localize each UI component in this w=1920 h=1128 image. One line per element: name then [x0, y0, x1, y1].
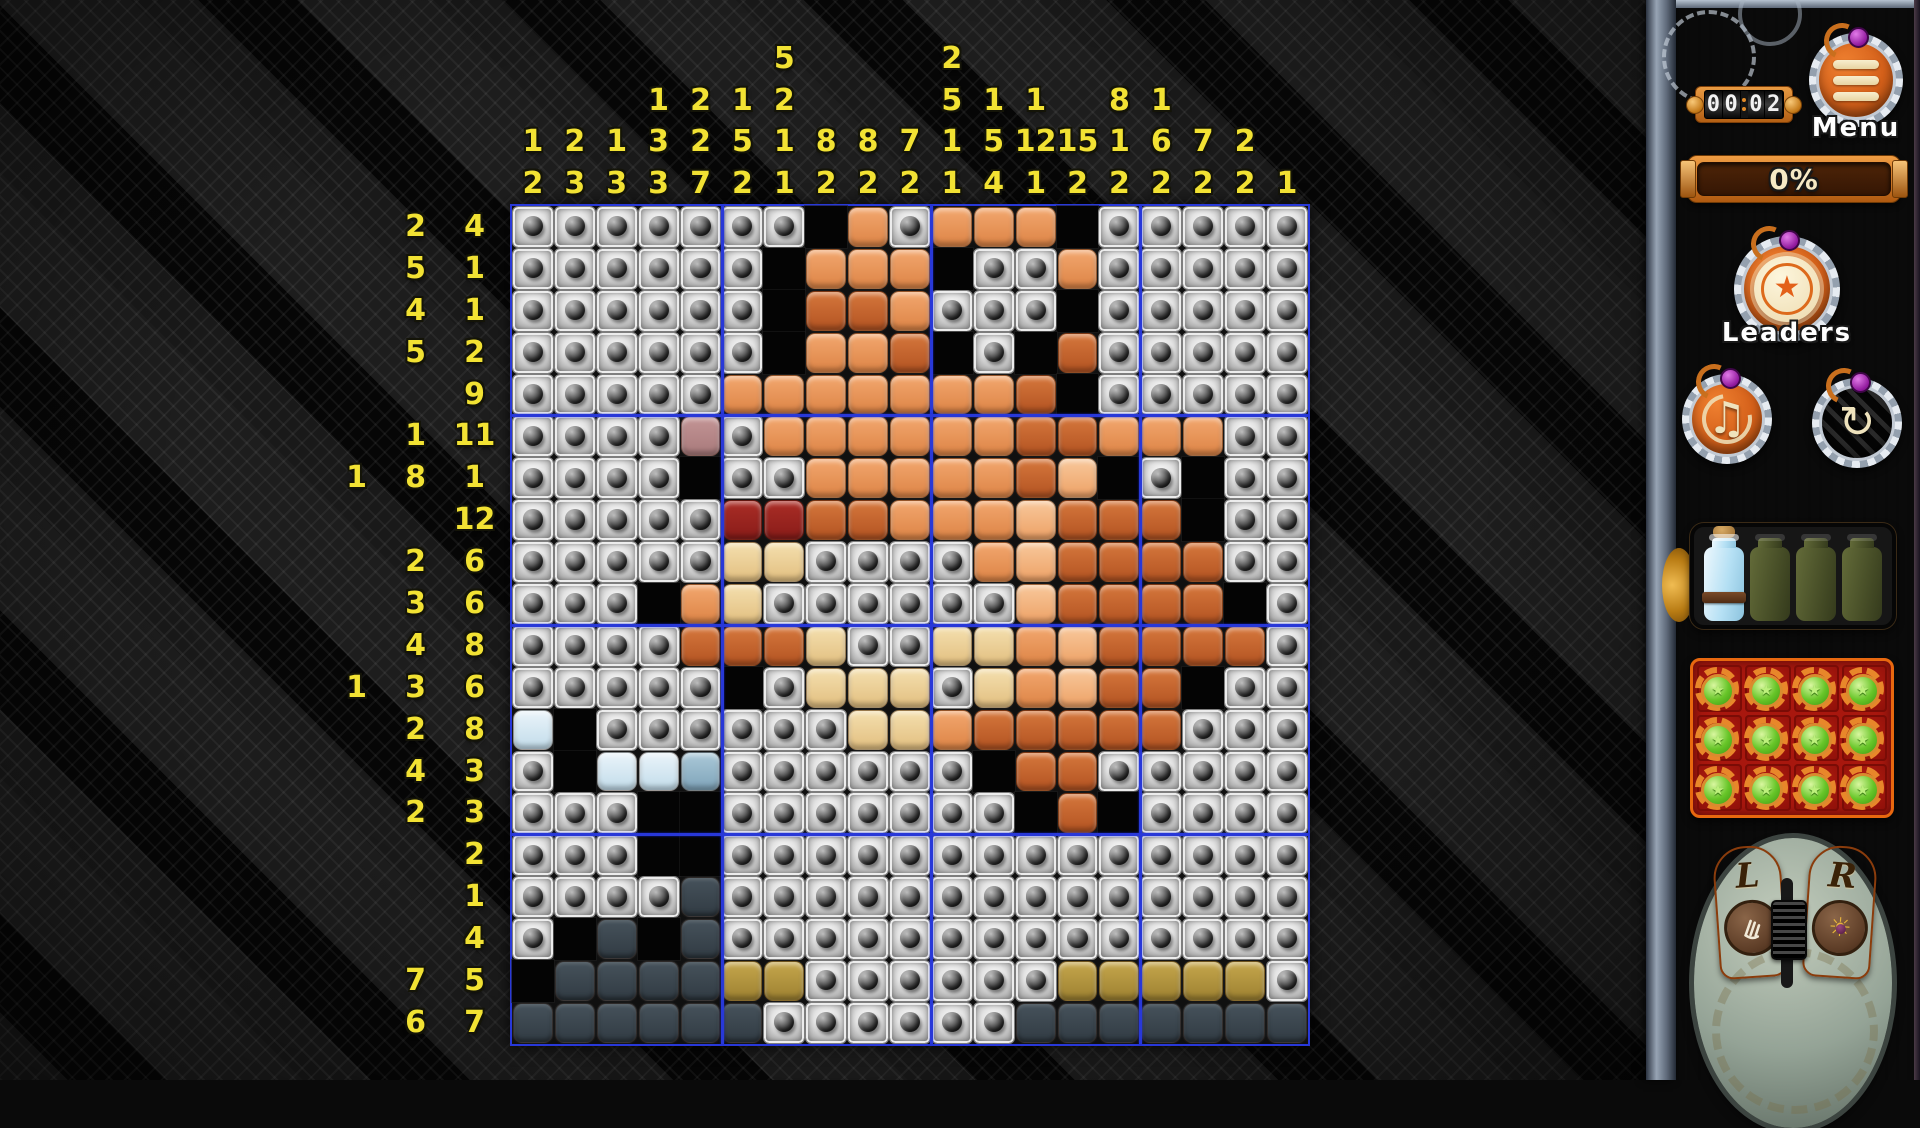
grid-cell[interactable]: [722, 333, 762, 373]
grid-cell[interactable]: [1058, 500, 1098, 540]
grid-cell[interactable]: [555, 542, 595, 582]
grid-cell[interactable]: [1267, 668, 1307, 708]
grid-cell[interactable]: [1183, 584, 1223, 624]
potion-slot[interactable]: [1794, 531, 1838, 621]
grid-cell[interactable]: [597, 291, 637, 331]
grid-cell[interactable]: [890, 375, 930, 415]
grid-cell[interactable]: [555, 626, 595, 666]
grid-cell[interactable]: [1099, 584, 1139, 624]
grid-cell[interactable]: [722, 919, 762, 959]
grid-cell[interactable]: [806, 249, 846, 289]
grid-cell[interactable]: [932, 752, 972, 792]
grid-cell[interactable]: [513, 752, 553, 792]
grid-cell[interactable]: [1016, 626, 1056, 666]
grid-cell[interactable]: [932, 416, 972, 456]
grid-cell[interactable]: [764, 500, 804, 540]
grid-cell[interactable]: [1225, 542, 1265, 582]
grid-cell[interactable]: [722, 291, 762, 331]
grid-cell[interactable]: [764, 793, 804, 833]
grid-cell[interactable]: [974, 668, 1014, 708]
grid-cell[interactable]: [1267, 375, 1307, 415]
grid-cell[interactable]: [597, 1003, 637, 1043]
grid-cell[interactable]: [932, 877, 972, 917]
grid-cell[interactable]: [932, 542, 972, 582]
grid-cell[interactable]: [848, 249, 888, 289]
grid-cell[interactable]: [1057, 290, 1099, 332]
grid-cell[interactable]: [806, 416, 846, 456]
grid-cell[interactable]: [764, 668, 804, 708]
grid-cell[interactable]: [681, 500, 721, 540]
grid-cell[interactable]: [848, 668, 888, 708]
grid-cell[interactable]: [1225, 752, 1265, 792]
grid-cell[interactable]: [1267, 500, 1307, 540]
grid-cell[interactable]: [764, 416, 804, 456]
grid-cell[interactable]: [1141, 584, 1181, 624]
grid-cell[interactable]: [1225, 919, 1265, 959]
grid-cell[interactable]: [1225, 375, 1265, 415]
grid-cell[interactable]: [1016, 752, 1056, 792]
grid-cell[interactable]: [722, 835, 762, 875]
grid-cell[interactable]: [597, 877, 637, 917]
grid-cell[interactable]: [597, 249, 637, 289]
grid-cell[interactable]: [513, 793, 553, 833]
grid-cell[interactable]: [555, 500, 595, 540]
grid-cell[interactable]: [1016, 207, 1056, 247]
grid-cell[interactable]: [597, 835, 637, 875]
grid-cell[interactable]: [555, 291, 595, 331]
grid-cell[interactable]: [890, 542, 930, 582]
grid-cell[interactable]: [639, 207, 679, 247]
grid-cell[interactable]: [1267, 249, 1307, 289]
grid-cell[interactable]: [1141, 416, 1181, 456]
grid-cell[interactable]: [597, 333, 637, 373]
grid-cell[interactable]: [555, 249, 595, 289]
grid-cell[interactable]: [764, 710, 804, 750]
grid-cell[interactable]: [763, 290, 805, 332]
grid-cell[interactable]: [597, 626, 637, 666]
grid-cell[interactable]: [1016, 919, 1056, 959]
grid-cell[interactable]: [848, 919, 888, 959]
grid-cell[interactable]: [932, 291, 972, 331]
grid-cell[interactable]: [639, 500, 679, 540]
grid-cell[interactable]: [681, 207, 721, 247]
grid-cell[interactable]: [1099, 291, 1139, 331]
grid-cell[interactable]: [513, 458, 553, 498]
grid-cell[interactable]: [1267, 1003, 1307, 1043]
grid-cell[interactable]: [932, 793, 972, 833]
grid-cell[interactable]: [932, 458, 972, 498]
grid-cell[interactable]: [1183, 542, 1223, 582]
grid-cell[interactable]: [890, 877, 930, 917]
grid-cell[interactable]: [890, 710, 930, 750]
grid-cell[interactable]: [1225, 1003, 1265, 1043]
grid-cell[interactable]: [639, 668, 679, 708]
grid-cell[interactable]: [931, 248, 973, 290]
grid-cell[interactable]: [1016, 668, 1056, 708]
grid-cell[interactable]: [554, 918, 596, 960]
grid-cell[interactable]: [1016, 542, 1056, 582]
grid-cell[interactable]: [1016, 877, 1056, 917]
grid-cell[interactable]: [764, 919, 804, 959]
grid-cell[interactable]: [848, 793, 888, 833]
grid-cell[interactable]: [1058, 752, 1098, 792]
grid-cell[interactable]: [1267, 458, 1307, 498]
grid-cell[interactable]: [974, 291, 1014, 331]
grid-cell[interactable]: [1141, 207, 1181, 247]
grid-cell[interactable]: [639, 877, 679, 917]
grid-cell[interactable]: [555, 416, 595, 456]
grid-cell[interactable]: [764, 877, 804, 917]
grid-cell[interactable]: [1099, 668, 1139, 708]
grid-cell[interactable]: [974, 835, 1014, 875]
grid-cell[interactable]: [932, 626, 972, 666]
grid-cell[interactable]: [681, 668, 721, 708]
grid-cell[interactable]: [681, 333, 721, 373]
grid-cell[interactable]: [1141, 291, 1181, 331]
grid-cell[interactable]: [890, 291, 930, 331]
grid-cell[interactable]: [1225, 668, 1265, 708]
grid-cell[interactable]: [1224, 583, 1266, 625]
grid-cell[interactable]: [513, 542, 553, 582]
grid-cell[interactable]: [1182, 499, 1224, 541]
grid-cell[interactable]: [639, 416, 679, 456]
grid-cell[interactable]: [890, 626, 930, 666]
grid-cell[interactable]: [932, 710, 972, 750]
grid-cell[interactable]: [1099, 752, 1139, 792]
grid-cell[interactable]: [932, 500, 972, 540]
grid-cell[interactable]: [1141, 542, 1181, 582]
grid-cell[interactable]: [890, 207, 930, 247]
grid-cell[interactable]: [1267, 584, 1307, 624]
grid-cell[interactable]: [1099, 416, 1139, 456]
grid-cell[interactable]: [1267, 626, 1307, 666]
grid-cell[interactable]: [763, 248, 805, 290]
grid-cell[interactable]: [1098, 457, 1140, 499]
grid-cell[interactable]: [722, 500, 762, 540]
grid-cell[interactable]: [597, 207, 637, 247]
grid-cell[interactable]: [932, 919, 972, 959]
grid-cell[interactable]: [681, 291, 721, 331]
grid-cell[interactable]: [1099, 919, 1139, 959]
grid-cell[interactable]: [1016, 710, 1056, 750]
grid-cell[interactable]: [974, 793, 1014, 833]
grid-cell[interactable]: [1183, 291, 1223, 331]
grid-cell[interactable]: [848, 500, 888, 540]
grid-cell[interactable]: [974, 333, 1014, 373]
grid-cell[interactable]: [1016, 249, 1056, 289]
grid-cell[interactable]: [1267, 416, 1307, 456]
grid-cell[interactable]: [722, 793, 762, 833]
grid-cell[interactable]: [1016, 416, 1056, 456]
grid-cell[interactable]: [848, 375, 888, 415]
grid-cell[interactable]: [555, 961, 595, 1001]
grid-cell[interactable]: [639, 710, 679, 750]
grid-cell[interactable]: [1267, 710, 1307, 750]
grid-cell[interactable]: [1058, 835, 1098, 875]
grid-cell[interactable]: [638, 834, 680, 876]
grid-cell[interactable]: [639, 542, 679, 582]
grid-cell[interactable]: [1225, 291, 1265, 331]
grid-cell[interactable]: [1183, 416, 1223, 456]
grid-cell[interactable]: [513, 626, 553, 666]
grid-cell[interactable]: [597, 584, 637, 624]
grid-cell[interactable]: [555, 1003, 595, 1043]
grid-cell[interactable]: [890, 793, 930, 833]
grid-cell[interactable]: [639, 375, 679, 415]
grid-cell[interactable]: [764, 626, 804, 666]
grid-cell[interactable]: [1183, 919, 1223, 959]
grid-cell[interactable]: [1057, 206, 1099, 248]
grid-cell[interactable]: [1099, 333, 1139, 373]
grid-cell[interactable]: [597, 793, 637, 833]
grid-cell[interactable]: [722, 877, 762, 917]
grid-cell[interactable]: [680, 457, 722, 499]
grid-cell[interactable]: [722, 249, 762, 289]
grid-cell[interactable]: [848, 835, 888, 875]
grid-cell[interactable]: [806, 584, 846, 624]
grid-cell[interactable]: [513, 416, 553, 456]
grid-cell[interactable]: [1183, 793, 1223, 833]
grid-cell[interactable]: [597, 375, 637, 415]
potion-slot[interactable]: [1748, 531, 1792, 621]
grid-cell[interactable]: [890, 416, 930, 456]
grid-cell[interactable]: [1267, 752, 1307, 792]
grid-cell[interactable]: [1058, 1003, 1098, 1043]
grid-cell[interactable]: [681, 877, 721, 917]
grid-cell[interactable]: [806, 835, 846, 875]
grid-cell[interactable]: [806, 752, 846, 792]
grid-cell[interactable]: [1058, 542, 1098, 582]
grid-cell[interactable]: [1141, 919, 1181, 959]
grid-cell[interactable]: [722, 1003, 762, 1043]
grid-cell[interactable]: [931, 332, 973, 374]
grid-cell[interactable]: [1141, 710, 1181, 750]
grid-cell[interactable]: [848, 961, 888, 1001]
grid-cell[interactable]: [806, 500, 846, 540]
grid-cell[interactable]: [932, 207, 972, 247]
grid-cell[interactable]: [1183, 375, 1223, 415]
grid-cell[interactable]: [1141, 835, 1181, 875]
grid-cell[interactable]: [764, 961, 804, 1001]
grid-cell[interactable]: [890, 668, 930, 708]
grid-cell[interactable]: [638, 583, 680, 625]
grid-cell[interactable]: [890, 835, 930, 875]
grid-cell[interactable]: [806, 793, 846, 833]
grid-cell[interactable]: [554, 751, 596, 793]
grid-cell[interactable]: [764, 835, 804, 875]
grid-cell[interactable]: [1183, 207, 1223, 247]
grid-cell[interactable]: [806, 668, 846, 708]
grid-cell[interactable]: [1058, 668, 1098, 708]
grid-cell[interactable]: [848, 877, 888, 917]
grid-cell[interactable]: [1099, 710, 1139, 750]
grid-cell[interactable]: [681, 752, 721, 792]
grid-cell[interactable]: [848, 458, 888, 498]
grid-cell[interactable]: [848, 584, 888, 624]
grid-cell[interactable]: [974, 458, 1014, 498]
grid-cell[interactable]: [1225, 626, 1265, 666]
grid-cell[interactable]: [1225, 500, 1265, 540]
grid-cell[interactable]: [1225, 458, 1265, 498]
grid-cell[interactable]: [1225, 207, 1265, 247]
grid-cell[interactable]: [806, 458, 846, 498]
grid-cell[interactable]: [513, 919, 553, 959]
grid-cell[interactable]: [1225, 416, 1265, 456]
grid-cell[interactable]: [974, 375, 1014, 415]
grid-cell[interactable]: [1141, 249, 1181, 289]
grid-cell[interactable]: [1057, 374, 1099, 416]
grid-cell[interactable]: [1267, 333, 1307, 373]
grid-cell[interactable]: [597, 710, 637, 750]
grid-cell[interactable]: [1225, 835, 1265, 875]
grid-cell[interactable]: [1016, 584, 1056, 624]
grid-cell[interactable]: [1099, 961, 1139, 1001]
grid-cell[interactable]: [974, 207, 1014, 247]
grid-cell[interactable]: [848, 710, 888, 750]
grid-cell[interactable]: [555, 668, 595, 708]
grid-cell[interactable]: [764, 542, 804, 582]
grid-cell[interactable]: [763, 332, 805, 374]
grid-cell[interactable]: [681, 710, 721, 750]
grid-cell[interactable]: [597, 500, 637, 540]
grid-cell[interactable]: [1099, 500, 1139, 540]
grid-cell[interactable]: [639, 458, 679, 498]
grid-cell[interactable]: [597, 752, 637, 792]
grid-cell[interactable]: [1183, 752, 1223, 792]
grid-cell[interactable]: [639, 752, 679, 792]
grid-cell[interactable]: [764, 375, 804, 415]
grid-cell[interactable]: [1183, 333, 1223, 373]
grid-cell[interactable]: [1141, 961, 1181, 1001]
grid-cell[interactable]: [513, 710, 553, 750]
grid-cell[interactable]: [890, 919, 930, 959]
grid-cell[interactable]: [848, 207, 888, 247]
grid-cell[interactable]: [722, 416, 762, 456]
grid-cell[interactable]: [1099, 375, 1139, 415]
grid-cell[interactable]: [681, 416, 721, 456]
grid-cell[interactable]: [555, 207, 595, 247]
grid-cell[interactable]: [513, 500, 553, 540]
grid-cell[interactable]: [555, 375, 595, 415]
grid-cell[interactable]: [513, 877, 553, 917]
grid-cell[interactable]: [513, 668, 553, 708]
grid-cell[interactable]: [681, 584, 721, 624]
grid-cell[interactable]: [848, 752, 888, 792]
grid-cell[interactable]: [1058, 584, 1098, 624]
grid-cell[interactable]: [1141, 500, 1181, 540]
grid-cell[interactable]: [1058, 416, 1098, 456]
grid-cell[interactable]: [805, 206, 847, 248]
grid-cell[interactable]: [1141, 877, 1181, 917]
grid-cell[interactable]: [806, 710, 846, 750]
grid-cell[interactable]: [513, 249, 553, 289]
grid-cell[interactable]: [1225, 877, 1265, 917]
grid-cell[interactable]: [1058, 919, 1098, 959]
grid-cell[interactable]: [639, 626, 679, 666]
grid-cell[interactable]: [974, 416, 1014, 456]
grid-cell[interactable]: [848, 626, 888, 666]
grid-cell[interactable]: [722, 626, 762, 666]
grid-cell[interactable]: [1183, 626, 1223, 666]
puzzle-board[interactable]: [512, 206, 1308, 1044]
grid-cell[interactable]: [1058, 877, 1098, 917]
grid-cell[interactable]: [848, 416, 888, 456]
grid-cell[interactable]: [932, 584, 972, 624]
grid-cell[interactable]: [890, 1003, 930, 1043]
grid-cell[interactable]: [1099, 249, 1139, 289]
grid-cell[interactable]: [1183, 249, 1223, 289]
grid-cell[interactable]: [806, 877, 846, 917]
grid-cell[interactable]: [1016, 375, 1056, 415]
grid-cell[interactable]: [1058, 961, 1098, 1001]
grid-cell[interactable]: [681, 626, 721, 666]
grid-cell[interactable]: [1016, 458, 1056, 498]
grid-cell[interactable]: [1267, 542, 1307, 582]
grid-cell[interactable]: [806, 919, 846, 959]
grid-cell[interactable]: [890, 458, 930, 498]
grid-cell[interactable]: [638, 918, 680, 960]
grid-cell[interactable]: [597, 961, 637, 1001]
grid-cell[interactable]: [764, 752, 804, 792]
grid-cell[interactable]: [1267, 207, 1307, 247]
grid-cell[interactable]: [1141, 752, 1181, 792]
grid-cell[interactable]: [555, 835, 595, 875]
grid-cell[interactable]: [681, 542, 721, 582]
potion-slot[interactable]: [1840, 531, 1884, 621]
grid-cell[interactable]: [890, 584, 930, 624]
grid-cell[interactable]: [1099, 626, 1139, 666]
music-toggle-button[interactable]: ♫: [1682, 374, 1772, 464]
grid-cell[interactable]: [722, 542, 762, 582]
grid-cell[interactable]: [974, 584, 1014, 624]
grid-cell[interactable]: [1267, 793, 1307, 833]
grid-cell[interactable]: [1141, 333, 1181, 373]
grid-cell[interactable]: [1058, 793, 1098, 833]
grid-cell[interactable]: [1098, 792, 1140, 834]
grid-cell[interactable]: [1016, 291, 1056, 331]
grid-cell[interactable]: [932, 1003, 972, 1043]
grid-cell[interactable]: [1099, 1003, 1139, 1043]
grid-cell[interactable]: [597, 542, 637, 582]
grid-cell[interactable]: [722, 752, 762, 792]
grid-cell[interactable]: [848, 542, 888, 582]
grid-cell[interactable]: [890, 333, 930, 373]
grid-cell[interactable]: [597, 668, 637, 708]
grid-cell[interactable]: [639, 333, 679, 373]
grid-cell[interactable]: [1225, 710, 1265, 750]
grid-cell[interactable]: [681, 1003, 721, 1043]
grid-cell[interactable]: [890, 249, 930, 289]
grid-cell[interactable]: [639, 1003, 679, 1043]
grid-cell[interactable]: [1267, 919, 1307, 959]
grid-cell[interactable]: [722, 961, 762, 1001]
grid-cell[interactable]: [806, 291, 846, 331]
grid-cell[interactable]: [639, 291, 679, 331]
grid-cell[interactable]: [1225, 333, 1265, 373]
grid-cell[interactable]: [680, 792, 722, 834]
grid-cell[interactable]: [681, 375, 721, 415]
grid-cell[interactable]: [555, 333, 595, 373]
grid-cell[interactable]: [1267, 835, 1307, 875]
grid-cell[interactable]: [1182, 667, 1224, 709]
grid-cell[interactable]: [848, 291, 888, 331]
grid-cell[interactable]: [722, 458, 762, 498]
grid-cell[interactable]: [1225, 793, 1265, 833]
mode-slider[interactable]: [1771, 900, 1807, 960]
grid-cell[interactable]: [681, 249, 721, 289]
grid-cell[interactable]: [513, 375, 553, 415]
grid-cell[interactable]: [1058, 249, 1098, 289]
